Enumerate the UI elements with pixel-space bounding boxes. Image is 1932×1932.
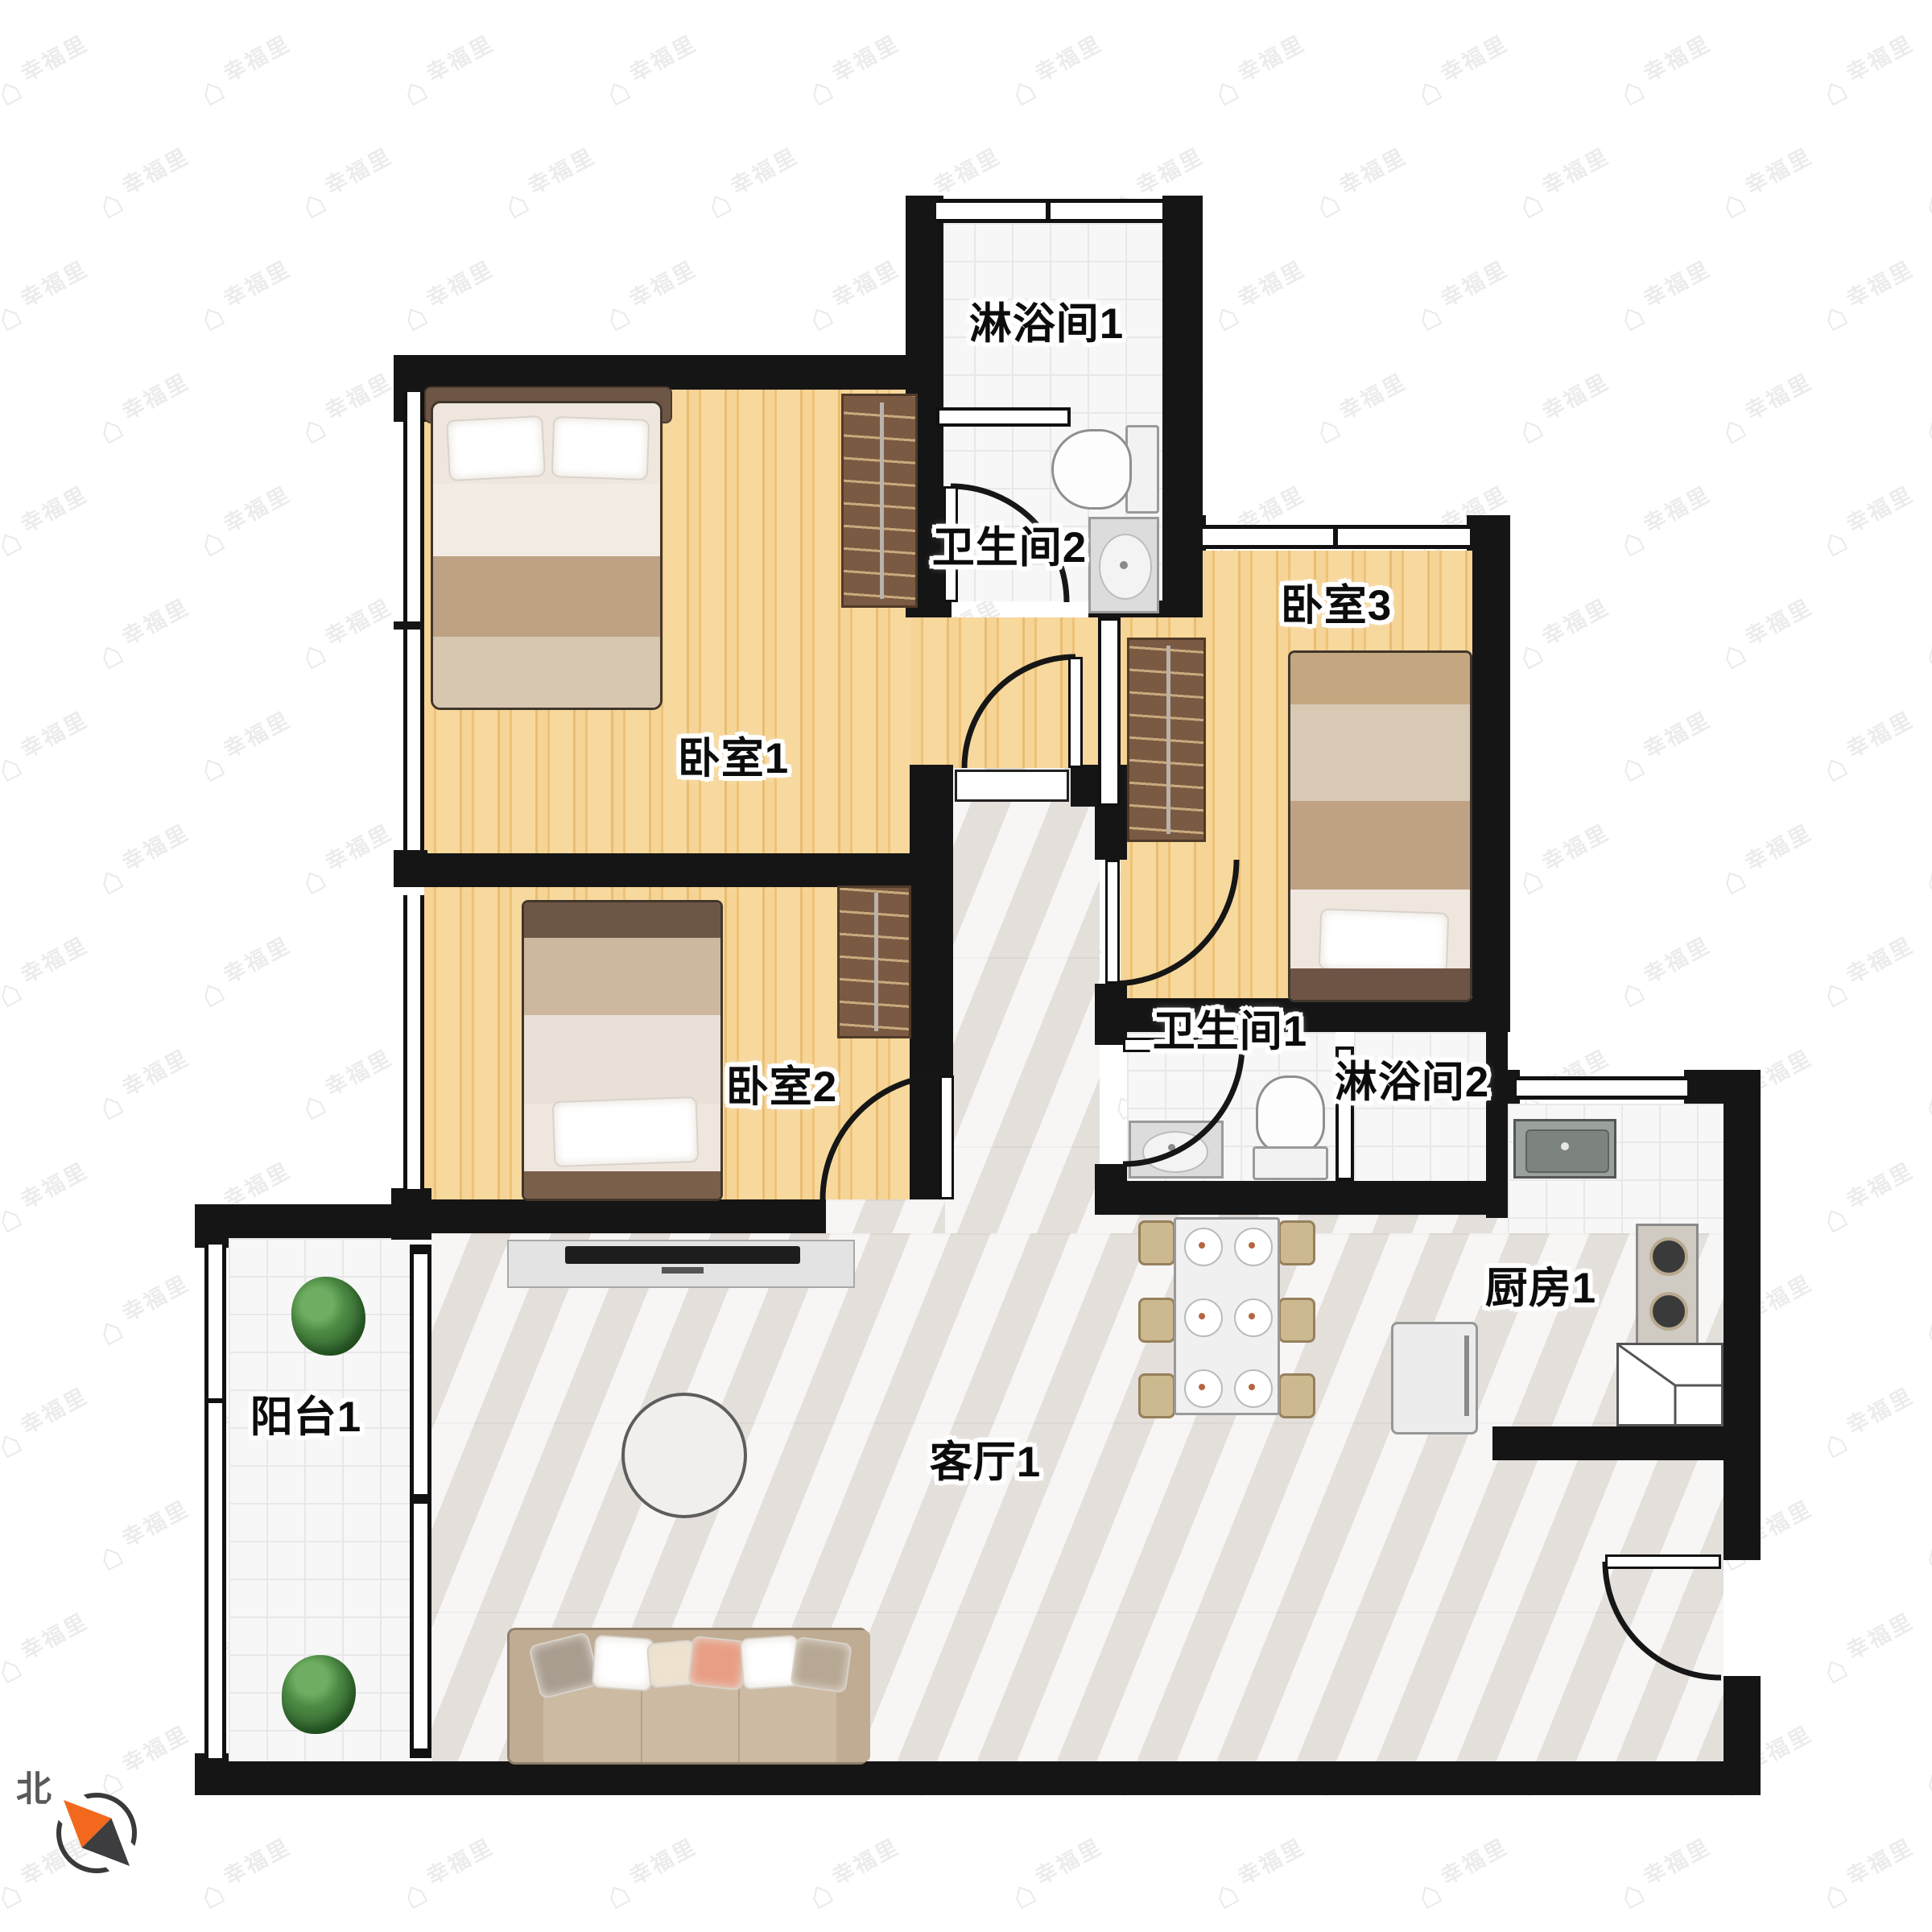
- door-leaf-corridor: [1068, 657, 1083, 768]
- floor-plan-canvas: ⌂幸福里⌂幸福里⌂幸福里⌂幸福里⌂幸福里⌂幸福里⌂幸福里⌂幸福里⌂幸福里⌂幸福里…: [0, 0, 1932, 1932]
- room-label-shower-2: 淋浴间2: [1335, 1048, 1489, 1109]
- room-label-shower-1: 淋浴间1: [969, 290, 1124, 351]
- compass-icon: [56, 1793, 137, 1873]
- room-label-bathroom-1: 卫生间1: [1153, 997, 1307, 1059]
- door-leaf-bedroom-3: [1105, 860, 1120, 984]
- door-arc-bedroom-3: [1113, 860, 1236, 984]
- door-arc-bathroom-1: [1123, 1045, 1242, 1164]
- room-label-bedroom-2: 卧室2: [726, 1053, 837, 1114]
- room-label-bathroom-2: 卫生间2: [932, 514, 1087, 575]
- door-arc-corridor: [964, 657, 1075, 768]
- room-label-bedroom-1: 卧室1: [678, 724, 789, 786]
- room-label-balcony-1: 阳台1: [250, 1383, 361, 1444]
- door-arc-layer: [0, 0, 1932, 1932]
- door-arc-entrance: [1605, 1562, 1721, 1678]
- door-arc-bedroom-2: [823, 1075, 947, 1199]
- room-label-kitchen-1: 厨房1: [1485, 1254, 1596, 1315]
- door-leaf-bedroom-2: [939, 1075, 954, 1199]
- room-label-bedroom-3: 卧室3: [1281, 572, 1392, 633]
- door-leaf-entrance: [1605, 1554, 1721, 1569]
- room-label-living-room: 客厅1: [930, 1428, 1041, 1489]
